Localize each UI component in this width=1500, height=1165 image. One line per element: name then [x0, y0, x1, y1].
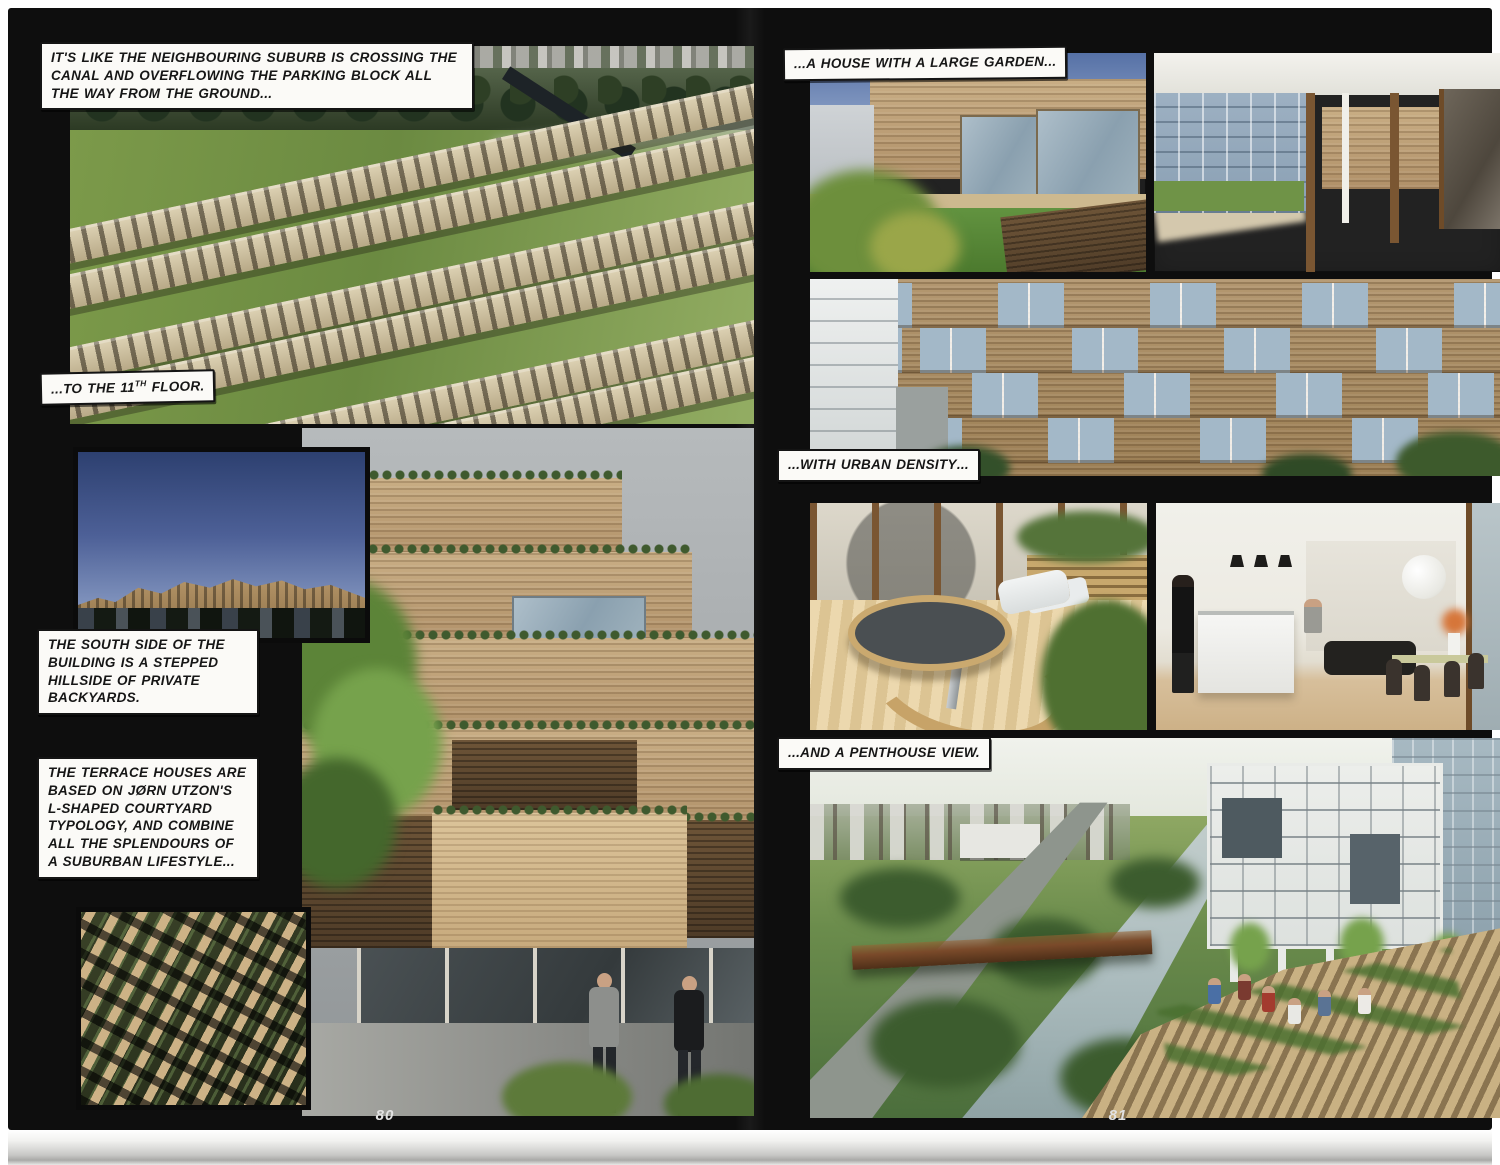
caption-large-garden: ...A HOUSE WITH A LARGE GARDEN... [783, 46, 1068, 81]
page-number-left: 80 [363, 1107, 407, 1124]
roof-lawn [1154, 181, 1304, 211]
photo-penthouse-view [810, 738, 1500, 1118]
white-building-edge [810, 279, 898, 476]
woman-at-counter [1172, 575, 1194, 693]
dining-chair [1386, 659, 1402, 695]
recessed-balcony [1222, 798, 1282, 858]
caption-text: ...AND A PENTHOUSE VIEW. [788, 745, 980, 760]
page-bottom-edge [8, 1130, 1492, 1165]
person-blue-grey [1318, 990, 1331, 1016]
timber-window-frame [1390, 93, 1399, 243]
photo-terrace-interior [1154, 53, 1500, 272]
pedestrian-torso [589, 987, 619, 1049]
photo-aerial-housing [76, 907, 311, 1110]
bright-timber-volume [432, 813, 687, 948]
book-spread-scan: IT'S LIKE THE NEIGHBOURING SUBURB IS CRO… [0, 0, 1500, 1165]
white-house [960, 824, 1040, 858]
window-row [810, 283, 1500, 328]
window-row [810, 328, 1500, 373]
photo-house-garden [810, 53, 1146, 272]
caption-terrace-houses: THE TERRACE HOUSES ARE BASED ON JØRN UTZ… [37, 757, 259, 879]
person-blue-shirt [1208, 978, 1221, 1004]
dining-chair [1414, 665, 1430, 701]
white-vase [1448, 633, 1460, 655]
sphere-lamp [1402, 555, 1446, 599]
caption-urban-density: ...WITH URBAN DENSITY... [777, 449, 980, 482]
glass-door [960, 115, 1044, 201]
caption-text: ...WITH URBAN DENSITY... [788, 457, 969, 472]
caption-11th-floor: ...TO THE 11TH FLOOR. [40, 369, 216, 406]
timber-window-frame [1306, 93, 1315, 272]
page-number-right: 81 [1096, 1107, 1140, 1124]
photo-terrace-table [810, 503, 1147, 730]
open-glass-door [1439, 89, 1500, 229]
photo-mountain-building [73, 447, 370, 643]
recessed-balcony [1350, 834, 1400, 904]
dark-timber-band [452, 740, 637, 810]
glass-wall [1466, 503, 1500, 730]
person-red-top [1262, 986, 1275, 1012]
person-white-shirt [1358, 988, 1371, 1014]
caption-text: IT'S LIKE THE NEIGHBOURING SUBURB IS CRO… [51, 50, 457, 101]
pedestrian-torso [674, 990, 704, 1052]
dining-chair [1468, 653, 1484, 689]
caption-south-side: THE SOUTH SIDE OF THE BUILDING IS A STEP… [37, 629, 259, 715]
seated-person [1304, 599, 1322, 633]
caption-text: ...TO THE 11TH FLOOR. [51, 378, 205, 396]
kitchen-island [1198, 611, 1294, 693]
dining-chair [1444, 661, 1460, 697]
caption-text: ...A HOUSE WITH A LARGE GARDEN... [794, 54, 1057, 71]
photo-kitchen-interior [1156, 503, 1500, 730]
caption-text: THE SOUTH SIDE OF THE BUILDING IS A STEP… [48, 637, 225, 705]
photo-facade [810, 279, 1500, 476]
caption-text: THE TERRACE HOUSES ARE BASED ON JØRN UTZ… [48, 765, 246, 869]
planter-greenery [1017, 511, 1147, 563]
housing-grid-pattern [81, 912, 306, 1105]
tree-cluster [840, 868, 960, 928]
person-dark-red [1238, 974, 1251, 1000]
person-white-shirt [1288, 998, 1301, 1024]
young-tree [1230, 923, 1270, 971]
caption-overflowing-parking-block: IT'S LIKE THE NEIGHBOURING SUBURB IS CRO… [40, 42, 474, 110]
tree-cluster [870, 998, 1020, 1088]
orange-flowers [1442, 609, 1468, 635]
tree-cluster [1110, 858, 1200, 908]
white-column [1342, 93, 1349, 223]
caption-penthouse-view: ...AND A PENTHOUSE VIEW. [777, 737, 991, 770]
